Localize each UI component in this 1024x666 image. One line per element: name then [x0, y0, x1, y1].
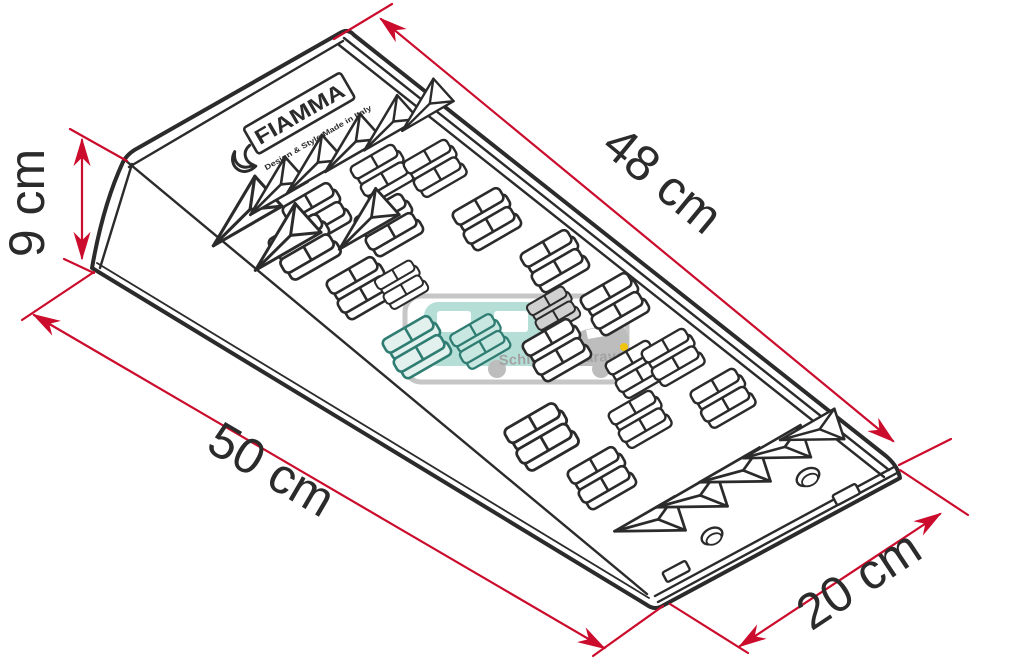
- dimension-label-slope-length: 48 cm: [592, 115, 733, 245]
- dimension-label-base-length: 50 cm: [199, 411, 345, 528]
- drawing-canvas: Schippers-caravans.nl: [0, 0, 1024, 666]
- dimension-label-height: 9 cm: [0, 149, 55, 257]
- technical-drawing: Schippers-caravans.nl: [0, 0, 1024, 666]
- ramp: Schippers-caravans.nl: [92, 31, 900, 608]
- dimension-label-width: 20 cm: [786, 519, 930, 641]
